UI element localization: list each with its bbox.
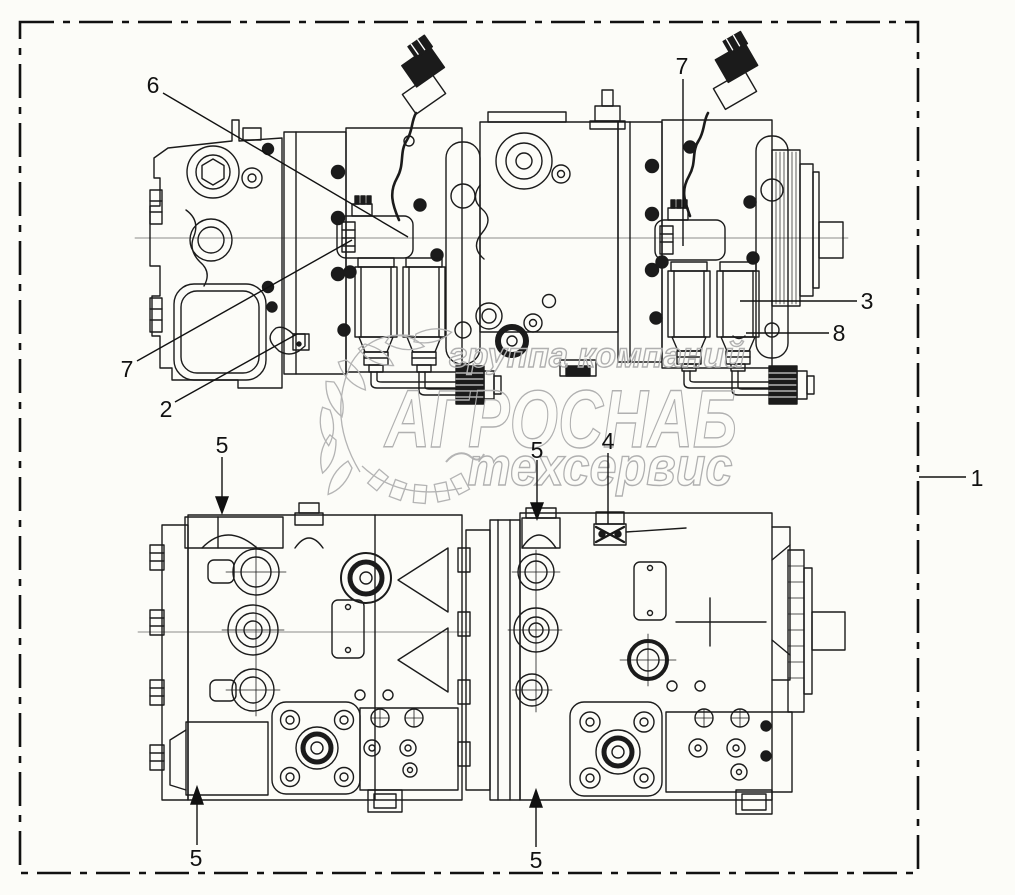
callout-7-left: 7 [121,356,134,382]
callout-5-bottom-mid: 5 [530,847,543,873]
bottom-assembly-drawing [138,503,845,814]
valve-block [355,690,458,790]
ports-left [208,546,286,716]
right-hose-connector [769,366,814,404]
leader-6 [163,93,408,237]
drain-fitting [270,327,309,354]
bottom-shaft-end [772,527,845,712]
leader-7-left [137,240,352,361]
arrowhead-5-bottom-mid [530,790,542,807]
gearbox-housing [150,120,282,388]
watermark-top-line: группа компаний [449,336,745,375]
watermark-bottom-line: техсервис [468,437,733,497]
callout-3: 3 [861,288,874,314]
ports-right [508,550,562,712]
callout-5-bottom-left: 5 [190,845,203,871]
callout-8: 8 [833,320,846,346]
parts-diagram-page: группа компаний АГРОСНАБ техсервис 6 7 7… [0,0,1015,895]
top-cap [185,517,283,548]
left-pump-cable [392,113,416,220]
parts-diagram-canvas: группа компаний АГРОСНАБ техсервис 6 7 7… [0,0,1015,895]
callout-4: 4 [602,428,615,454]
left-electrical-plug [382,35,459,114]
breather [295,503,323,548]
callout-2: 2 [160,396,173,422]
bottom-left-pump [150,503,462,812]
right-pump-cable [684,113,708,216]
leader-2 [175,334,297,402]
arrowhead-5-top-left [216,497,228,513]
callout-5-top-left: 5 [216,432,229,458]
right-solenoid-valve [655,200,725,260]
callout-1: 1 [971,465,984,491]
arrowhead-5-top-mid [531,503,543,519]
left-solenoid-valve [337,196,413,258]
left-filter-2 [403,258,445,372]
valve-block-right [666,681,792,792]
right-electrical-plug [695,31,770,109]
mounting-plate [272,702,360,794]
callout-7-top: 7 [676,53,689,79]
left-filter-1 [355,258,397,372]
watermark: группа компаний АГРОСНАБ техсервис [308,323,745,504]
callout-6: 6 [147,72,160,98]
top-shaft-end [772,150,843,306]
top-fitting [522,508,560,548]
bottom-right-pump [458,508,845,814]
callout-5-top-mid: 5 [531,437,544,463]
mounting-plate-right [570,702,662,796]
center-housing [475,90,625,376]
